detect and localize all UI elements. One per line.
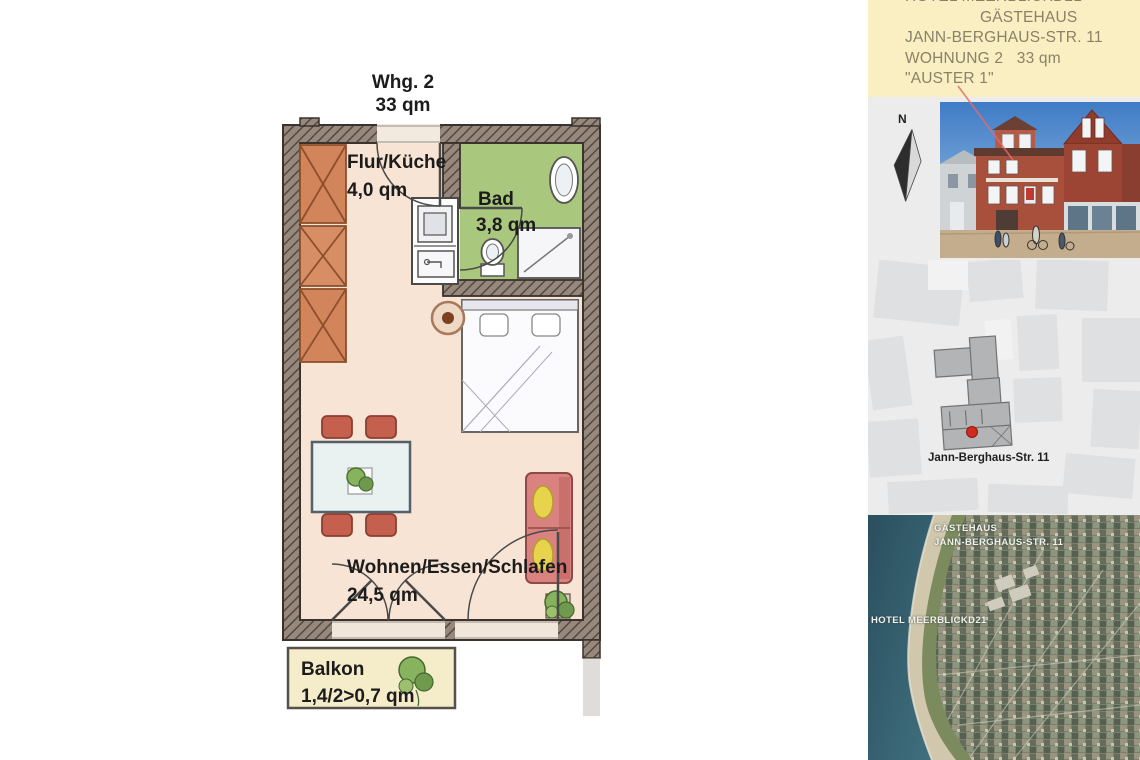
corner-plant-icon: [545, 591, 574, 618]
aerial-label-hotel: HOTEL MEERBLICKD21: [871, 614, 987, 628]
toilet: [481, 239, 504, 276]
bathroom-sink: [550, 157, 578, 203]
bed: [462, 300, 578, 432]
wall-continuation-faded: [583, 658, 600, 716]
site-map: Jann-Berghaus-Str. 11: [868, 260, 1140, 515]
header-street: JANN-BERGHAUS-STR. 11: [905, 28, 1140, 49]
apartment-area: 33 qm: [376, 95, 431, 116]
wardrobe: [300, 145, 346, 362]
room-area-bad: 3,8 qm: [476, 215, 536, 236]
header-apartment-name: "AUSTER 1": [905, 69, 1140, 90]
header-hotel-name: HOTEL MEERBLICKD21: [905, 0, 1140, 8]
aerial-photo: GÄSTEHAUS JANN-BERGHAUS-STR. 11 HOTEL ME…: [868, 515, 1140, 760]
room-label-bad: Bad: [478, 189, 514, 210]
room-area-balkon: 1,4/2>0,7 qm: [301, 686, 415, 707]
expose-page: Whg. 2 33 qm: [0, 0, 1140, 760]
room-area-flur: 4,0 qm: [347, 180, 407, 201]
room-label-flur: Flur/Küche: [347, 152, 446, 173]
svg-text:N: N: [898, 112, 907, 126]
wall-stub-bottom-right: [583, 640, 600, 658]
location-marker: [967, 427, 978, 438]
floor-plan-drawing: Whg. 2 33 qm: [240, 50, 640, 760]
building-photo: [940, 102, 1140, 258]
wall-stub-top-right: [572, 118, 600, 126]
sidebar-header: HOTEL MEERBLICKD21 GÄSTEHAUS JANN-BERGHA…: [868, 0, 1140, 97]
info-sidebar: HOTEL MEERBLICKD21 GÄSTEHAUS JANN-BERGHA…: [868, 0, 1140, 760]
room-label-wohnen: Wohnen/Essen/Schlafen: [347, 557, 567, 578]
bad-bottom-wall: [443, 280, 583, 296]
table-plant-icon: [347, 468, 373, 494]
room-label-balkon: Balkon: [301, 659, 364, 680]
photo-strip: N: [868, 97, 1140, 260]
apartment-title: Whg. 2: [372, 72, 434, 93]
wall-stub-top-left: [300, 118, 319, 126]
kitchen-unit: [412, 198, 458, 284]
header-gaestehaus: GÄSTEHAUS: [905, 8, 1140, 29]
room-area-wohnen: 24,5 qm: [347, 585, 418, 606]
aerial-label-gaestehaus: GÄSTEHAUS JANN-BERGHAUS-STR. 11: [934, 522, 1063, 550]
side-table: [432, 302, 464, 334]
compass-icon: N: [882, 107, 942, 222]
site-map-caption: Jann-Berghaus-Str. 11: [928, 452, 1049, 464]
header-apartment: WOHNUNG 2 33 qm: [905, 49, 1140, 70]
